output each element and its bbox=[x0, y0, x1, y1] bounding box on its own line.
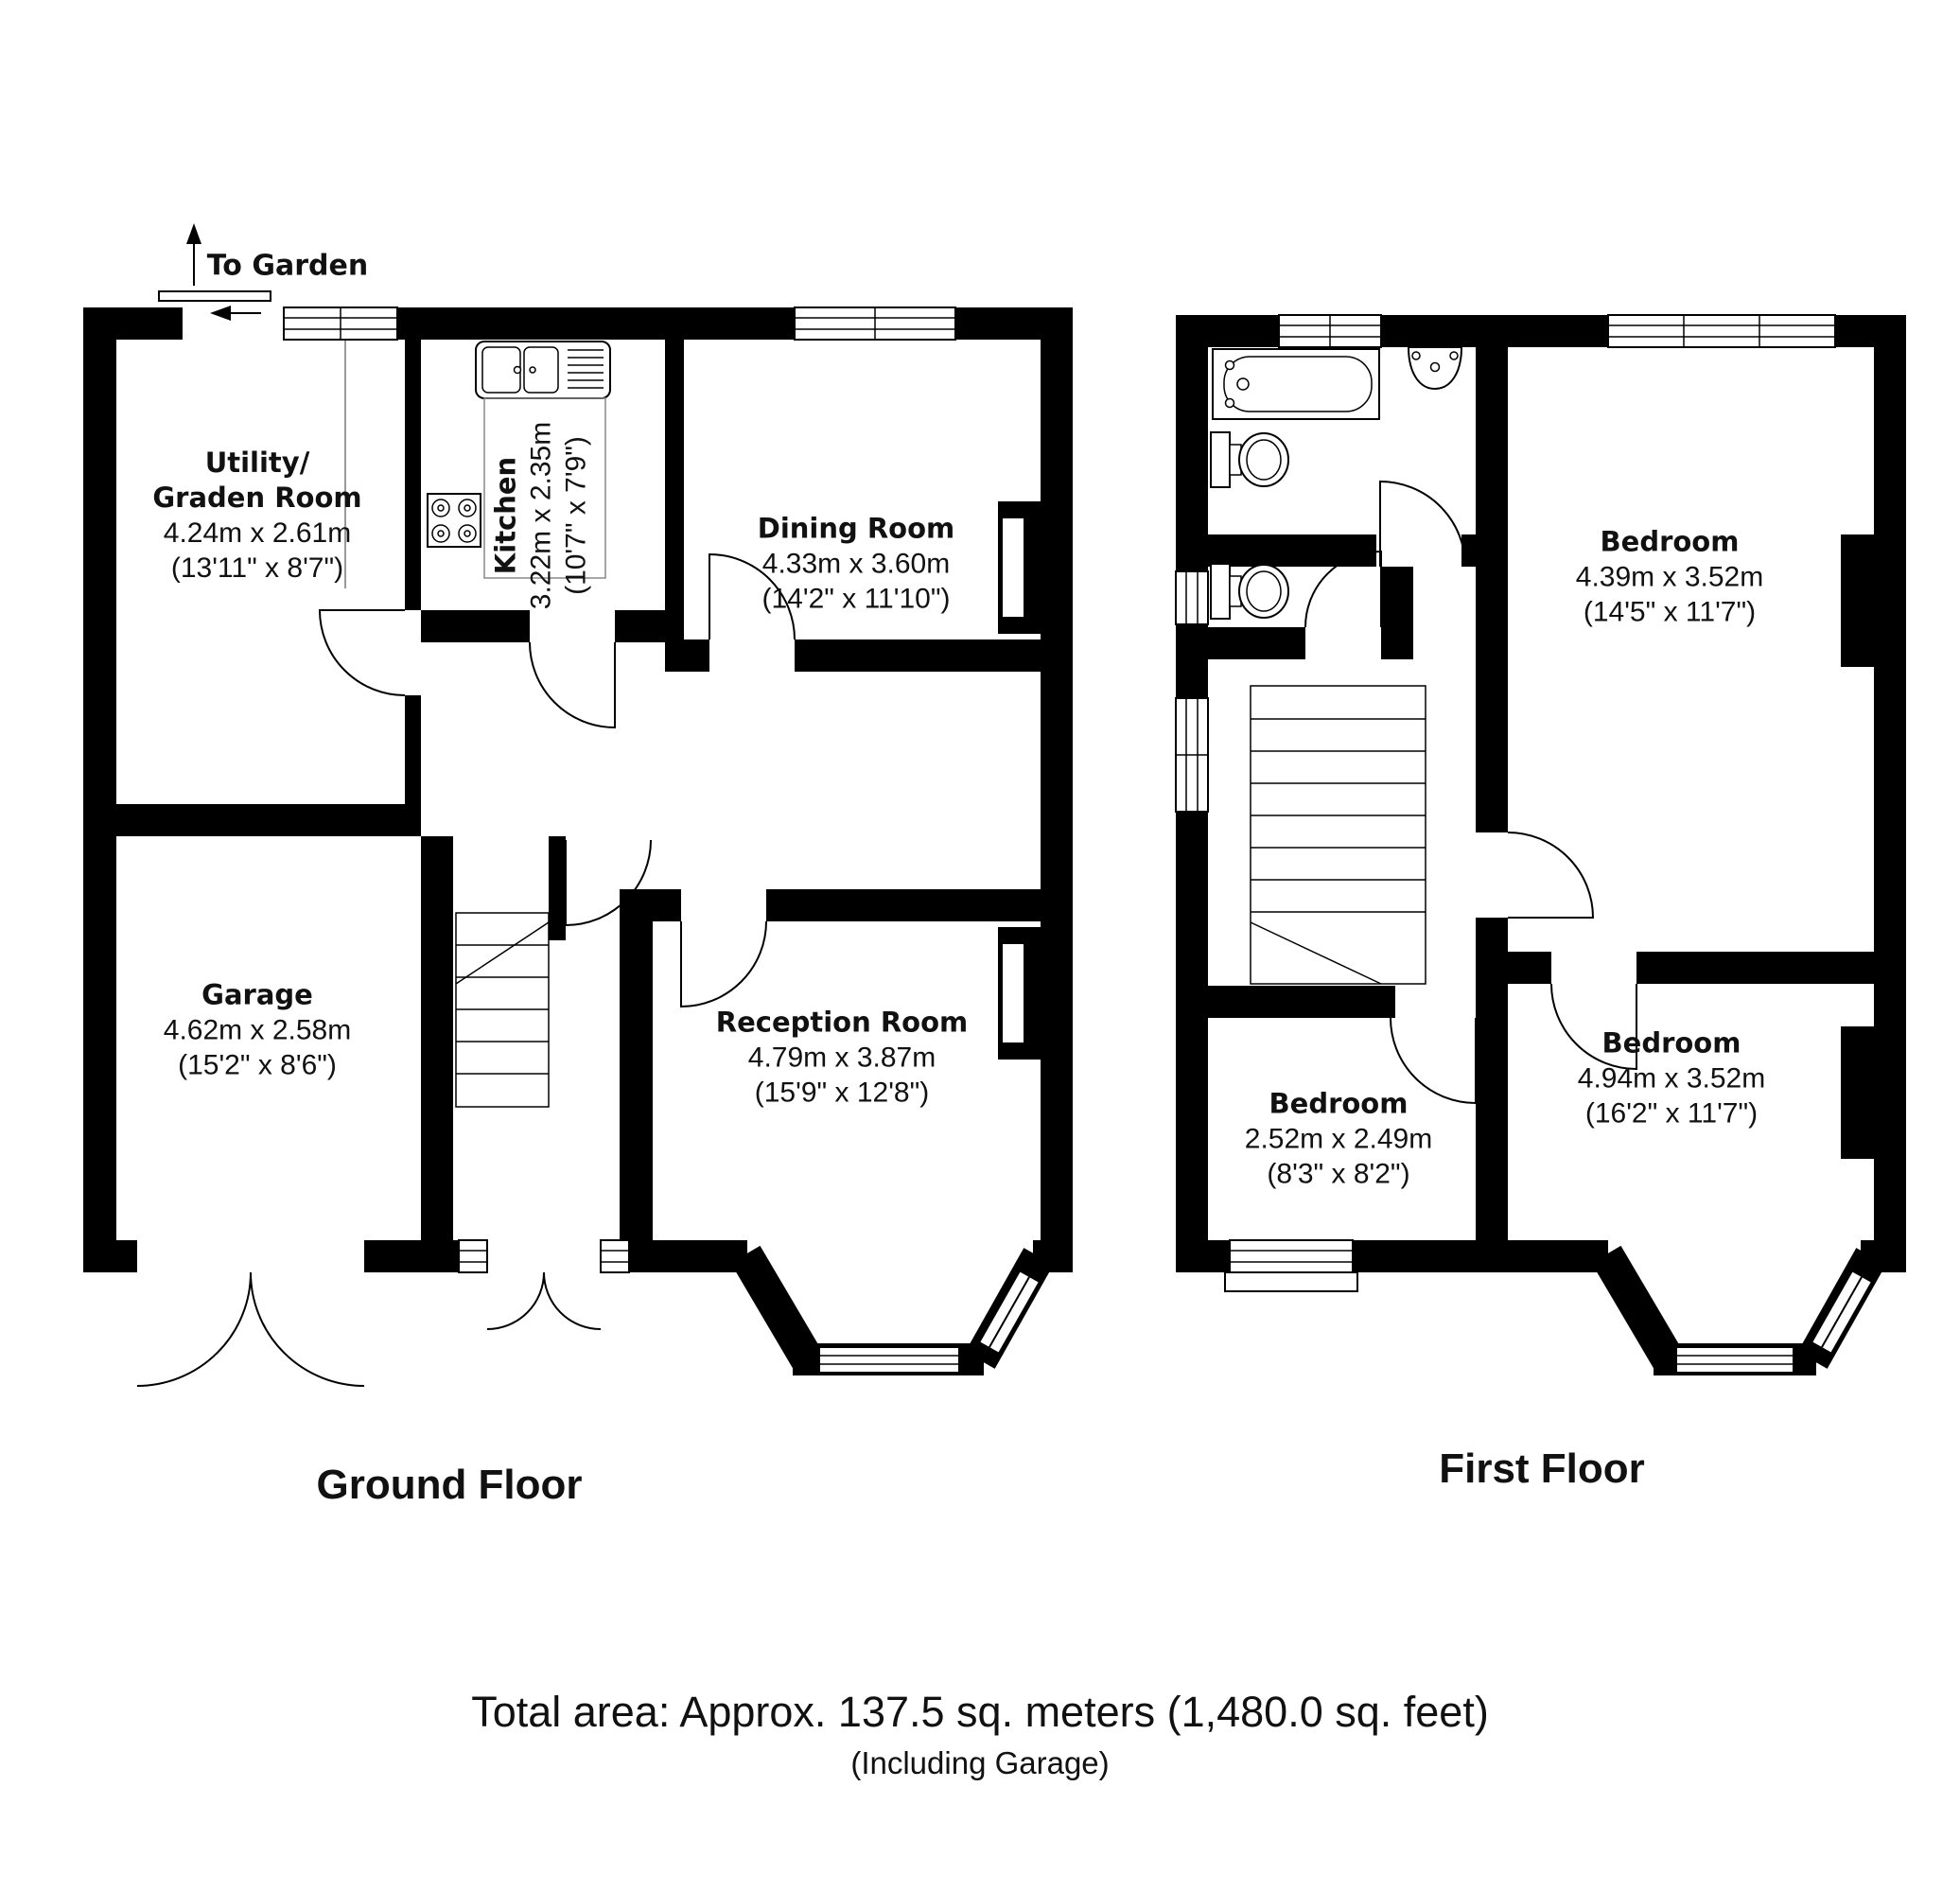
room-name: Dining Room bbox=[758, 512, 955, 547]
room-dims-ft: (13'11" x 8'7") bbox=[152, 551, 361, 586]
room-name: Bedroom bbox=[1578, 1026, 1765, 1061]
door-bathroom bbox=[1380, 482, 1465, 567]
floorplan-page: To Garden Utility/ Graden Room 4.24m x 2… bbox=[0, 0, 1960, 1892]
room-dims-m: 2.52m x 2.49m bbox=[1245, 1122, 1432, 1157]
total-area-text: Total area: Approx. 137.5 sq. meters (1,… bbox=[471, 1688, 1489, 1737]
room-dims-m: 4.62m x 2.58m bbox=[164, 1013, 351, 1048]
first-floor-title: First Floor bbox=[1439, 1445, 1645, 1493]
garden-arrow-left-icon bbox=[210, 306, 261, 321]
kitchen-label: Kitchen 3.22m x 2.35m (10'7" x 7'9") bbox=[489, 422, 594, 609]
room-dims-m: 4.39m x 3.52m bbox=[1576, 560, 1763, 595]
door-entrance-double bbox=[487, 1272, 601, 1329]
room-dims-m: 4.24m x 2.61m bbox=[152, 516, 361, 551]
door-bedroom-rear bbox=[1508, 832, 1593, 918]
room-name: Bedroom bbox=[1245, 1087, 1432, 1122]
toilet-wc-icon bbox=[1211, 564, 1288, 619]
room-dims-ft: (15'2" x 8'6") bbox=[164, 1048, 351, 1083]
utility-room-label: Utility/ Graden Room 4.24m x 2.61m (13'1… bbox=[152, 446, 361, 586]
door-reception bbox=[681, 921, 766, 1007]
garden-door bbox=[159, 291, 271, 301]
toilet-bathroom-icon bbox=[1211, 432, 1288, 487]
window-utility-top bbox=[284, 307, 397, 340]
bedroom-rear-label: Bedroom 4.39m x 3.52m (14'5" x 11'7") bbox=[1576, 525, 1763, 630]
room-dims-m: 4.94m x 3.52m bbox=[1578, 1061, 1765, 1096]
dining-room-label: Dining Room 4.33m x 3.60m (14'2" x 11'10… bbox=[758, 512, 955, 617]
garden-arrow-up-icon bbox=[186, 223, 201, 286]
bedroom-small-label: Bedroom 2.52m x 2.49m (8'3" x 8'2") bbox=[1245, 1087, 1432, 1192]
floorplan-graphics bbox=[0, 0, 1960, 1892]
staircase-first-icon bbox=[1251, 686, 1426, 984]
reception-room-label: Reception Room 4.79m x 3.87m (15'9" x 12… bbox=[716, 1006, 968, 1111]
window-wc-left bbox=[1176, 571, 1208, 624]
room-dims-ft: (10'7" x 7'9") bbox=[559, 422, 594, 609]
bath-tub-icon bbox=[1213, 349, 1379, 419]
window-hall-left bbox=[459, 1240, 487, 1272]
garage-label: Garage 4.62m x 2.58m (15'2" x 8'6") bbox=[164, 978, 351, 1083]
first-floor-plan bbox=[1176, 315, 1906, 1375]
including-garage-note: (Including Garage) bbox=[850, 1745, 1109, 1781]
ground-floor-plan bbox=[83, 223, 1073, 1386]
window-bathroom-top bbox=[1279, 315, 1381, 347]
room-name: Garage bbox=[164, 978, 351, 1013]
cooker-hob-icon bbox=[428, 494, 481, 547]
room-dims-ft: (15'9" x 12'8") bbox=[716, 1076, 968, 1111]
room-dims-ft: (16'2" x 11'7") bbox=[1578, 1096, 1765, 1131]
room-dims-m: 4.33m x 3.60m bbox=[758, 547, 955, 582]
room-dims-ft: (14'2" x 11'10") bbox=[758, 582, 955, 617]
door-kitchen bbox=[530, 642, 615, 727]
room-name: Kitchen bbox=[489, 422, 524, 609]
room-name: Reception Room bbox=[716, 1006, 968, 1041]
chimney-breast-icon bbox=[1003, 518, 1024, 1042]
room-name: Utility/ bbox=[152, 446, 361, 481]
window-hall-right bbox=[601, 1240, 629, 1272]
kitchen-sink-icon bbox=[476, 342, 610, 398]
staircase-ground-icon bbox=[456, 913, 549, 1107]
window-landing-left bbox=[1176, 698, 1208, 812]
room-dims-m: 3.22m x 2.35m bbox=[524, 422, 559, 609]
bay-window-ground bbox=[745, 1254, 1039, 1375]
bay-window-first bbox=[1606, 1254, 1871, 1375]
ground-floor-title: Ground Floor bbox=[316, 1462, 582, 1509]
window-dining-top bbox=[795, 307, 955, 340]
window-bedroom-rear-top bbox=[1608, 315, 1835, 347]
window-bedroom-small-bottom bbox=[1225, 1240, 1357, 1291]
room-dims-ft: (8'3" x 8'2") bbox=[1245, 1157, 1432, 1192]
bedroom-front-label: Bedroom 4.94m x 3.52m (16'2" x 11'7") bbox=[1578, 1026, 1765, 1131]
room-name: Graden Room bbox=[152, 481, 361, 516]
wash-basin-icon bbox=[1409, 347, 1461, 389]
garden-label: To Garden bbox=[207, 250, 368, 283]
room-dims-ft: (14'5" x 11'7") bbox=[1576, 595, 1763, 630]
room-name: Bedroom bbox=[1576, 525, 1763, 560]
door-garage-double bbox=[137, 1272, 364, 1386]
room-dims-m: 4.79m x 3.87m bbox=[716, 1041, 968, 1076]
door-utility bbox=[320, 610, 405, 695]
